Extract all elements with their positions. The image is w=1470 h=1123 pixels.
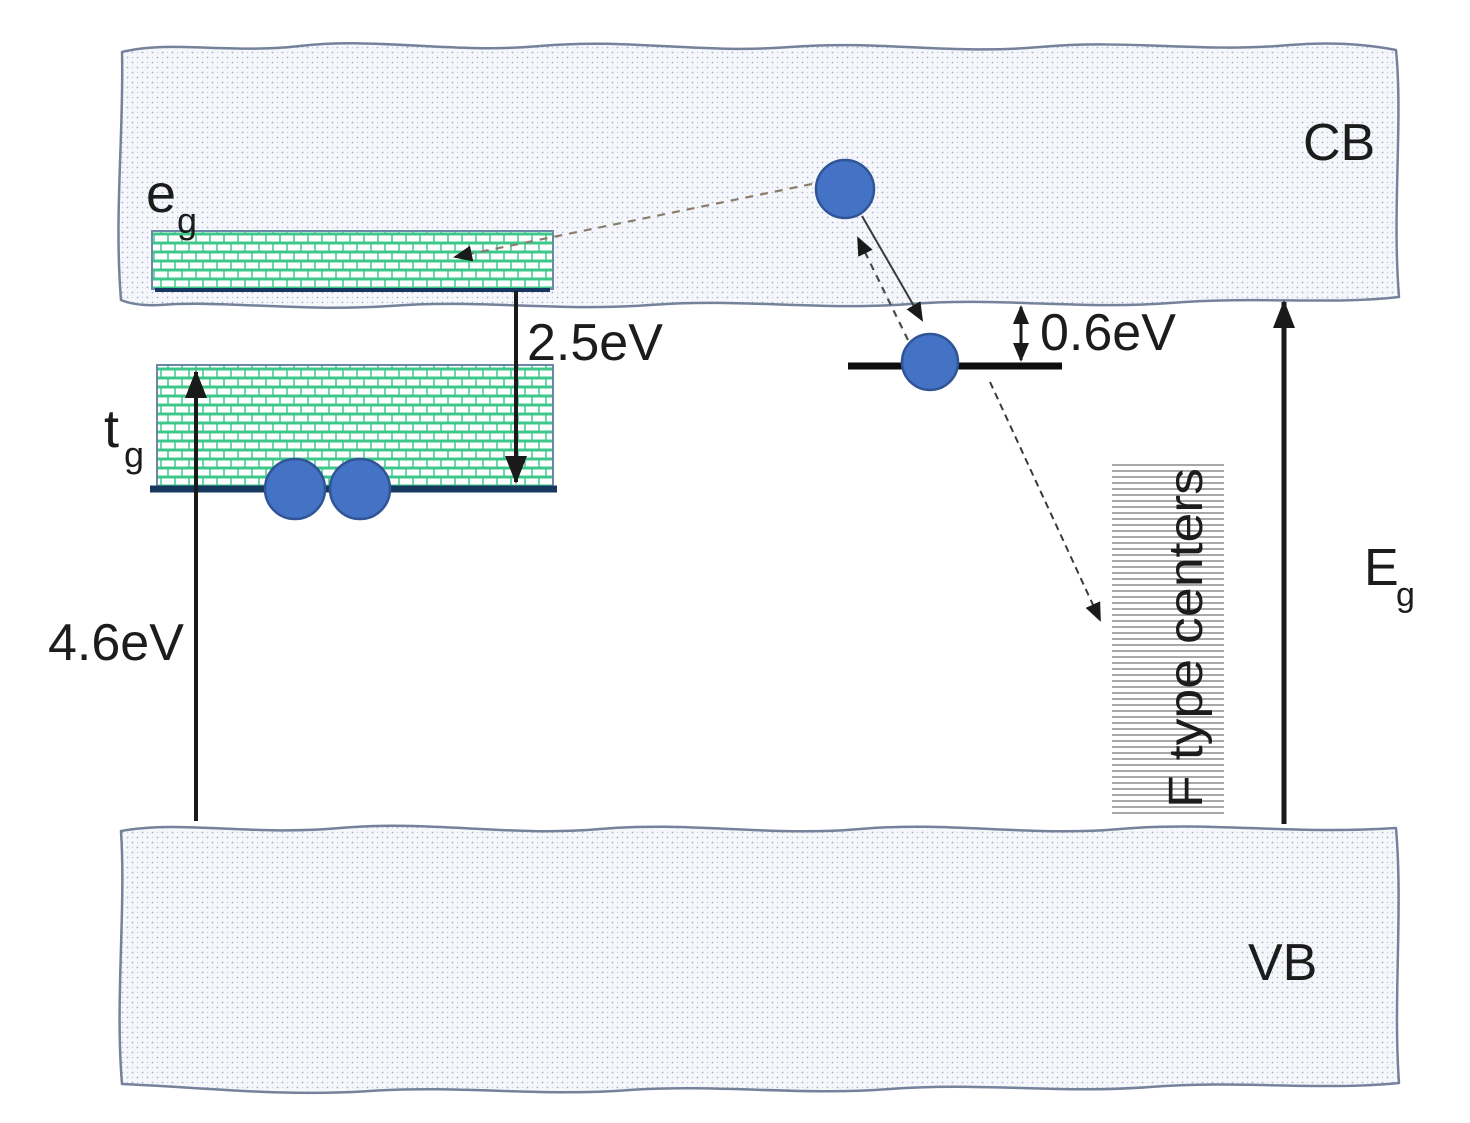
- energy-2-5ev-label: 2.5eV: [527, 314, 663, 372]
- f-centers-label: F type centers: [1160, 468, 1213, 808]
- valence-band: [120, 826, 1399, 1093]
- electron-tg-1: [265, 459, 325, 519]
- electron-trap: [902, 334, 958, 390]
- conduction-band-label: CB: [1303, 114, 1375, 172]
- eg-level-label: e: [146, 164, 176, 224]
- energy-band-diagram: CB VB e g t g E g 4.6eV 2.5eV 0.6eV F ty…: [0, 0, 1470, 1123]
- electron-tg-2: [330, 459, 390, 519]
- electron-cb: [816, 160, 874, 218]
- energy-4-6ev-label: 4.6eV: [48, 614, 184, 672]
- eg-level-label-sub: g: [177, 200, 197, 241]
- band-gap-label: E: [1364, 539, 1399, 597]
- band-diagram-svg: CB VB e g t g E g 4.6eV 2.5eV 0.6eV F ty…: [0, 0, 1470, 1123]
- eg-level-box: [152, 231, 553, 289]
- band-gap-label-sub: g: [1396, 576, 1415, 614]
- to-f-centers-dashed-arrow: [990, 382, 1100, 620]
- tg-level-label-sub: g: [124, 434, 144, 475]
- energy-0-6ev-label: 0.6eV: [1040, 304, 1176, 362]
- valence-band-label: VB: [1248, 934, 1317, 992]
- tg-level-label: t: [104, 399, 119, 459]
